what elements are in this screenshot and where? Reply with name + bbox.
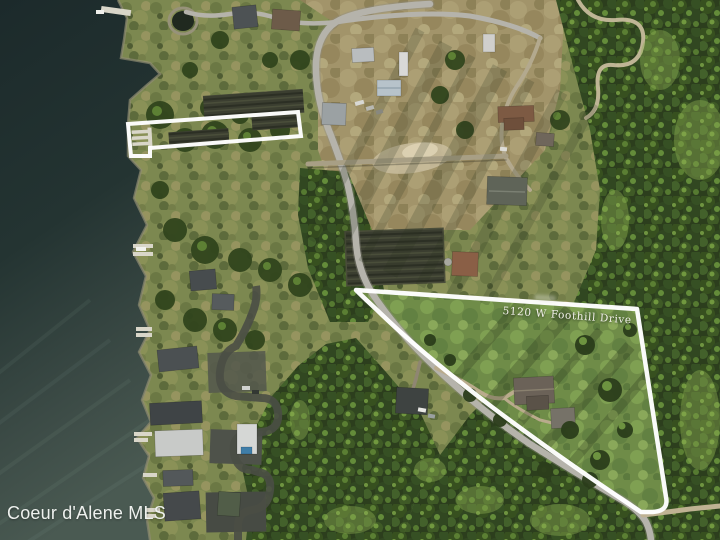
house-roof <box>271 9 300 31</box>
lakefront-house <box>149 401 202 426</box>
lakefront-house <box>163 491 201 521</box>
silo <box>444 258 452 266</box>
lakefront-house <box>163 469 194 486</box>
aerial-listing-photo: 5120 W Foothill Drive Coeur d'Alene MLS <box>0 0 720 540</box>
farmhouse-roof <box>352 47 375 62</box>
lakefront-house <box>157 346 199 372</box>
metal-shed <box>322 103 347 126</box>
parcel-house-wing <box>526 395 549 410</box>
dock-three-finger <box>131 127 152 148</box>
mls-watermark: Coeur d'Alene MLS <box>7 503 166 524</box>
white-trailer <box>483 34 495 52</box>
pool <box>241 447 252 454</box>
rv-trailer <box>399 52 408 76</box>
lakefront-house <box>189 269 217 291</box>
white-roof-building <box>155 429 204 457</box>
lakefront-house <box>212 294 235 311</box>
farm-barn <box>452 252 479 277</box>
aerial-scene <box>0 0 720 540</box>
house-roof <box>536 132 555 146</box>
green-roof-house <box>217 491 241 516</box>
dock <box>143 473 157 477</box>
red-roof-wing <box>504 118 524 131</box>
house-roof <box>232 5 258 29</box>
